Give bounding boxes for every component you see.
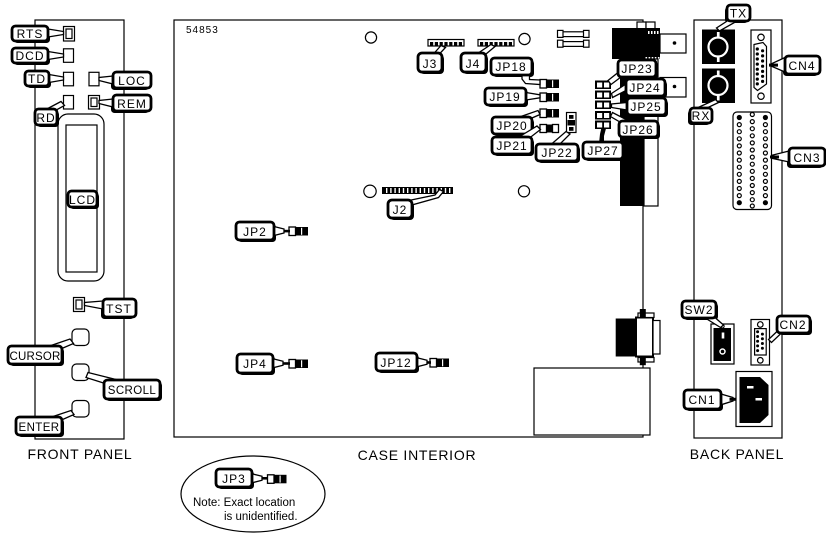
svg-text:CN3: CN3 bbox=[793, 151, 820, 165]
svg-text:Note: Exact location: Note: Exact location bbox=[193, 497, 295, 509]
svg-text:JP21: JP21 bbox=[496, 139, 527, 153]
svg-text:JP24: JP24 bbox=[629, 81, 660, 95]
svg-text:RX: RX bbox=[692, 109, 711, 123]
svg-text:J2: J2 bbox=[393, 203, 408, 217]
svg-text:JP4: JP4 bbox=[243, 357, 267, 371]
svg-text:JP25: JP25 bbox=[630, 100, 661, 114]
svg-text:CASE INTERIOR: CASE INTERIOR bbox=[358, 447, 477, 463]
svg-text:LCD: LCD bbox=[69, 193, 96, 207]
svg-text:JP12: JP12 bbox=[380, 356, 411, 370]
svg-text:RD: RD bbox=[36, 111, 55, 125]
svg-text:DCD: DCD bbox=[16, 49, 45, 63]
svg-text:54853: 54853 bbox=[186, 25, 219, 36]
svg-text:JP27: JP27 bbox=[587, 144, 618, 158]
svg-text:REM: REM bbox=[117, 97, 147, 111]
svg-text:CURSOR: CURSOR bbox=[9, 351, 60, 363]
svg-text:JP3: JP3 bbox=[222, 472, 246, 486]
svg-text:J4: J4 bbox=[466, 57, 481, 71]
svg-text:LOC: LOC bbox=[118, 74, 146, 88]
svg-text:JP23: JP23 bbox=[621, 62, 652, 76]
svg-text:CN1: CN1 bbox=[688, 393, 715, 407]
svg-text:TD: TD bbox=[28, 72, 46, 86]
svg-text:FRONT PANEL: FRONT PANEL bbox=[28, 446, 133, 462]
svg-text:JP20: JP20 bbox=[496, 119, 527, 133]
svg-text:is unidentified.: is unidentified. bbox=[224, 511, 298, 523]
svg-text:SW2: SW2 bbox=[684, 303, 713, 317]
svg-text:ENTER: ENTER bbox=[19, 422, 60, 434]
svg-text:CN2: CN2 bbox=[779, 318, 806, 332]
svg-text:TST: TST bbox=[106, 302, 132, 316]
svg-text:CN4: CN4 bbox=[788, 59, 815, 73]
svg-text:JP18: JP18 bbox=[495, 60, 526, 74]
svg-text:BACK PANEL: BACK PANEL bbox=[690, 446, 784, 462]
svg-text:J3: J3 bbox=[423, 57, 438, 71]
svg-text:JP22: JP22 bbox=[541, 146, 572, 160]
svg-text:JP2: JP2 bbox=[243, 225, 267, 239]
svg-text:JP19: JP19 bbox=[489, 90, 520, 104]
svg-text:RTS: RTS bbox=[17, 27, 44, 41]
svg-text:SCROLL: SCROLL bbox=[108, 385, 157, 397]
svg-text:TX: TX bbox=[730, 7, 747, 21]
svg-text:JP26: JP26 bbox=[622, 123, 653, 137]
